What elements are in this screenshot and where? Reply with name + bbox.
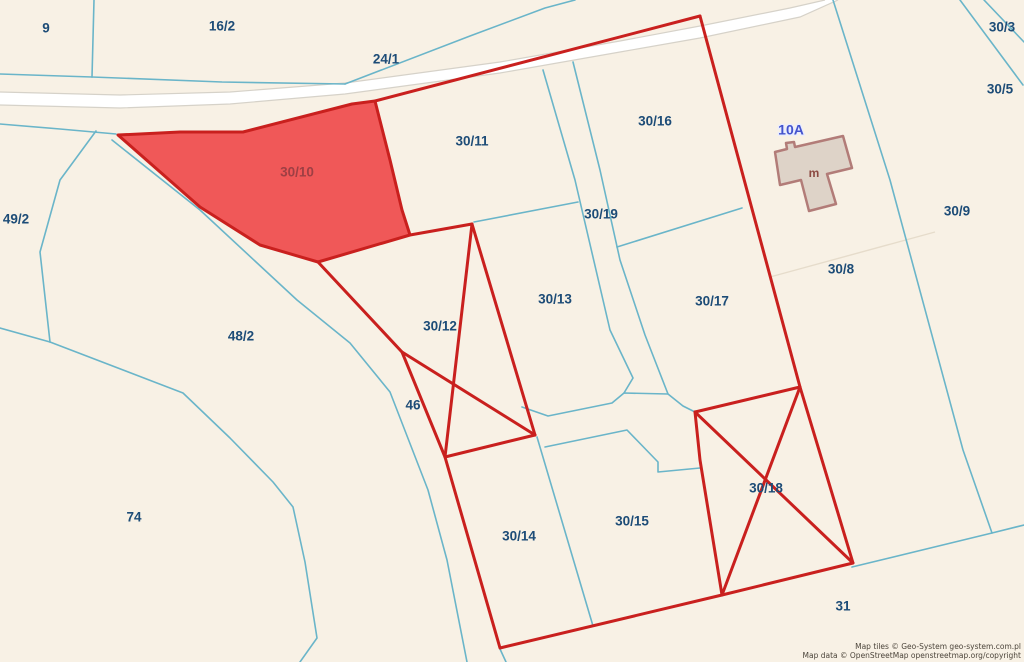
parcel-label-30-8: 30/8 [828, 262, 855, 277]
parcel-boundary-line [543, 70, 633, 393]
parcel-boundary-line [537, 437, 593, 626]
survey-boundary-line [695, 387, 800, 412]
parcel-boundary-line [852, 525, 1024, 567]
parcel-boundary-line [50, 342, 317, 662]
parcel-boundary-line [960, 0, 1023, 85]
road-edge-bottom [0, 0, 838, 108]
parcel-label-30-14: 30/14 [502, 529, 536, 544]
map-viewport[interactable]: 916/224/130/1130/1630/330/530/930/849/23… [0, 0, 1024, 662]
parcel-boundary-line [617, 208, 742, 247]
attribution-tiles: Map tiles © Geo-System geo-system.com.pl [803, 642, 1021, 651]
parcel-label-30-9: 30/9 [944, 204, 970, 219]
road-surface [0, 0, 838, 108]
parcel-label-10A: 10A [778, 122, 804, 138]
parcel-boundary-line [833, 0, 992, 533]
selected-parcel-30-10[interactable] [118, 101, 410, 262]
parcel-boundary-line [92, 77, 345, 84]
attribution-osm: Map data © OpenStreetMap openstreetmap.o… [803, 651, 1021, 660]
parcel-boundary-line [573, 62, 668, 394]
survey-boundary-line [321, 266, 404, 355]
parcel-label-30-11: 30/11 [455, 134, 489, 149]
parcel-label-30-12: 30/12 [423, 319, 457, 334]
parcel-boundary-line [92, 0, 94, 77]
parcel-label-30-10: 30/10 [280, 165, 314, 180]
parcel-boundary-line [0, 124, 116, 134]
parcel-boundary-line [0, 74, 92, 77]
parcel-label-30-5: 30/5 [987, 82, 1014, 97]
parcel-boundary-line [500, 649, 506, 662]
parcel-label-30-18: 30/18 [749, 481, 783, 496]
parcel-boundary-line [522, 393, 695, 416]
parcel-label-16-2: 16/2 [209, 19, 235, 34]
map-attribution: Map tiles © Geo-System geo-system.com.pl… [803, 642, 1021, 660]
survey-boundary-line [375, 16, 700, 101]
survey-boundary-line [445, 224, 472, 457]
parcel-label-30-15: 30/15 [615, 514, 649, 529]
parcel-label-30-13: 30/13 [538, 292, 572, 307]
parcel-boundary-line [474, 202, 578, 222]
parcel-label-m: m [809, 166, 820, 180]
survey-boundary-line [410, 224, 472, 235]
parcel-boundary-line [0, 328, 50, 342]
parcel-label-48-2: 48/2 [228, 329, 254, 344]
parcel-boundary-line [40, 131, 96, 342]
parcel-label-49-2: 49/2 [3, 212, 29, 227]
parcel-label-30-16: 30/16 [638, 114, 672, 129]
parcel-label-31: 31 [835, 599, 851, 614]
parcel-label-74: 74 [126, 510, 142, 525]
parcel-label-30-17: 30/17 [695, 294, 729, 309]
parcel-label-30-3: 30/3 [989, 20, 1016, 35]
survey-boundary-line [472, 224, 535, 435]
parcel-label-24-1: 24/1 [373, 52, 400, 67]
map-canvas[interactable]: 916/224/130/1130/1630/330/530/930/849/23… [0, 0, 1024, 662]
survey-boundary-line [445, 435, 535, 457]
parcel-boundary-line [545, 430, 700, 472]
parcel-label-30-19: 30/19 [584, 207, 618, 222]
parcel-label-9: 9 [42, 21, 50, 36]
parcel-label-46: 46 [405, 398, 421, 413]
survey-boundary-line [695, 412, 722, 595]
